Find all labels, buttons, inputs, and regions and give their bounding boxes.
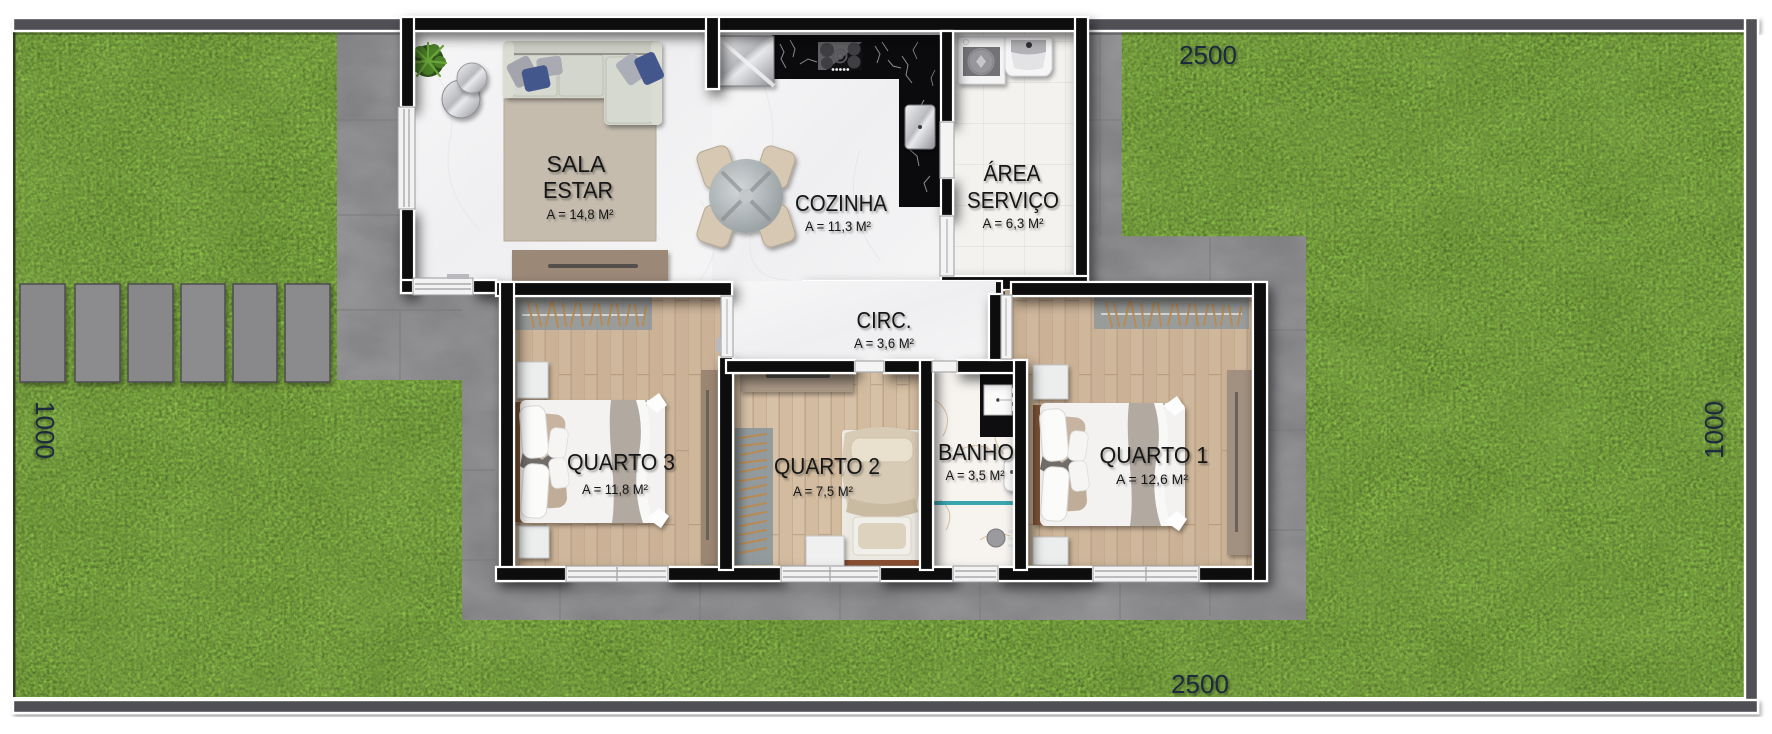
svg-text:1000: 1000 <box>1699 401 1729 459</box>
svg-text:CIRC.: CIRC. <box>857 307 912 333</box>
svg-text:ÁREA: ÁREA <box>984 160 1042 186</box>
svg-text:1000: 1000 <box>30 401 60 459</box>
svg-text:QUARTO 1: QUARTO 1 <box>1100 442 1209 468</box>
svg-text:A = 3,5 M²: A = 3,5 M² <box>946 467 1005 483</box>
svg-text:COZINHA: COZINHA <box>795 190 888 216</box>
svg-text:A = 11,8 M²: A = 11,8 M² <box>582 481 648 497</box>
svg-text:ESTAR: ESTAR <box>543 177 613 203</box>
svg-text:A = 3,6 M²: A = 3,6 M² <box>854 335 914 351</box>
svg-text:BANHO: BANHO <box>938 439 1014 465</box>
svg-text:A = 14,8 M²: A = 14,8 M² <box>547 206 614 222</box>
svg-text:2500: 2500 <box>1171 669 1229 699</box>
svg-text:A = 12,6 M²: A = 12,6 M² <box>1116 471 1188 487</box>
svg-text:2500: 2500 <box>1179 40 1237 70</box>
svg-text:A = 11,3 M²: A = 11,3 M² <box>805 218 871 234</box>
svg-text:SERVIÇO: SERVIÇO <box>967 187 1059 213</box>
svg-text:SALA: SALA <box>547 151 607 177</box>
svg-text:QUARTO 3: QUARTO 3 <box>567 449 675 475</box>
svg-text:A = 7,5 M²: A = 7,5 M² <box>793 483 853 499</box>
svg-text:A = 6,3 M²: A = 6,3 M² <box>983 215 1044 231</box>
svg-text:QUARTO 2: QUARTO 2 <box>774 453 880 479</box>
